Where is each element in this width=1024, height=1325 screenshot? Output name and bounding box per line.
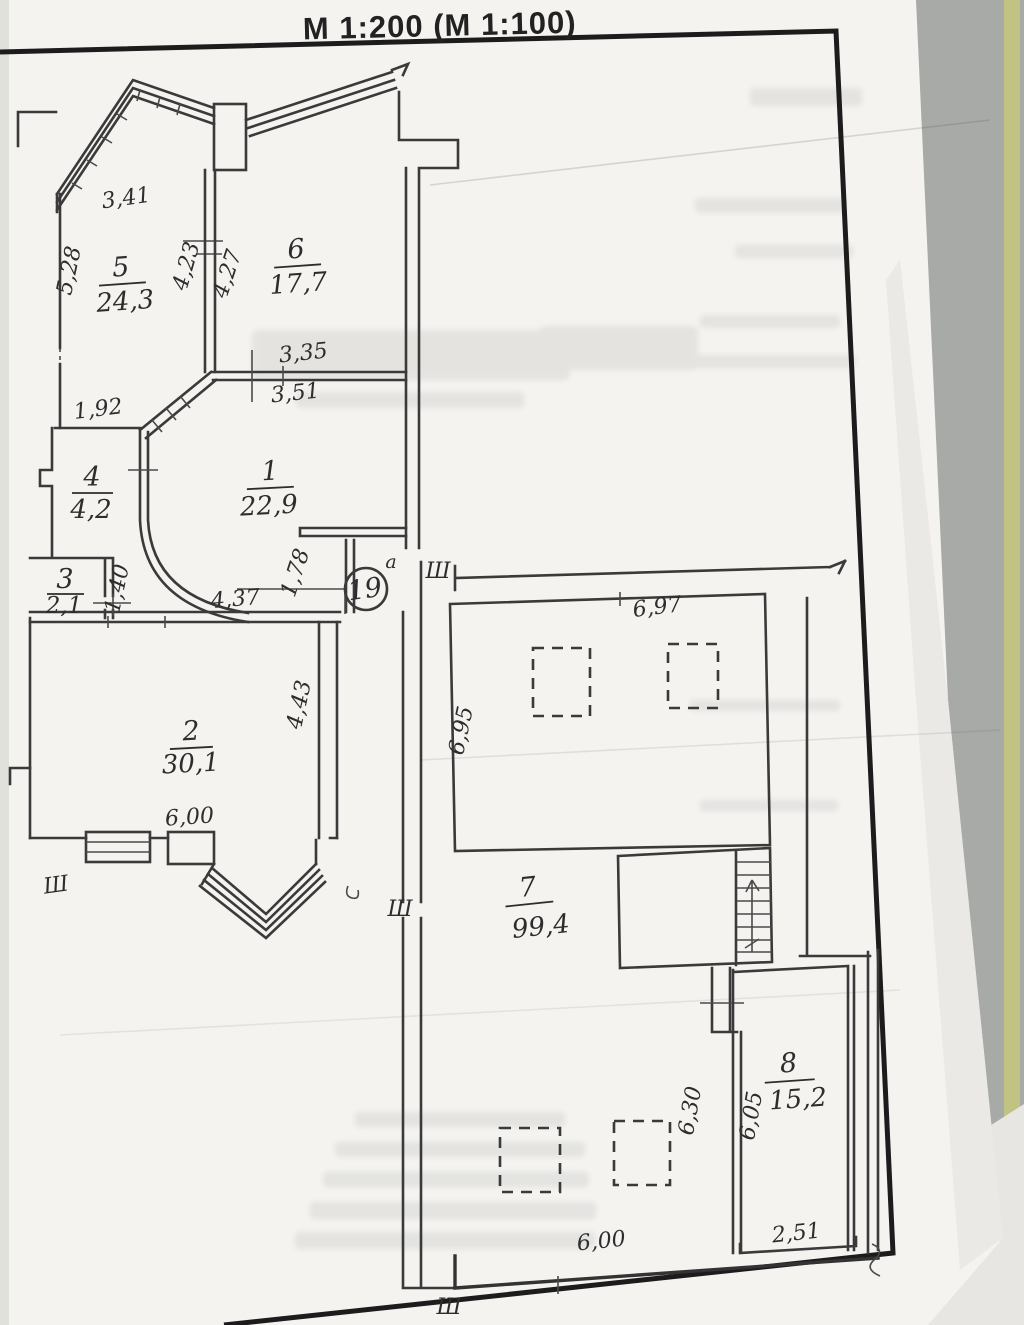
svg-text:8: 8	[779, 1047, 798, 1079]
svg-text:17,7: 17,7	[268, 267, 328, 301]
floor-plan-canvas: М 1:200 (М 1:100)	[0, 0, 1024, 1325]
dim-6-00: 6,00	[164, 803, 215, 831]
svg-text:99,4: 99,4	[510, 909, 571, 945]
svg-text:24,3: 24,3	[94, 285, 155, 319]
dim-3-51: 3,51	[270, 379, 321, 409]
door-mark-1: Ш	[41, 871, 71, 900]
paper-left-shadow	[0, 0, 9, 1325]
svg-text:6: 6	[286, 233, 305, 265]
door-mark-3: Ш	[386, 897, 413, 922]
dim-6-00-b: 6,00	[576, 1227, 627, 1257]
svg-text:5: 5	[111, 251, 130, 283]
svg-text:1: 1	[261, 456, 280, 488]
scanned-floor-plan-page: М 1:200 (М 1:100)	[0, 0, 1024, 1325]
dim-4-37: 4,37	[209, 585, 261, 614]
svg-text:4,2: 4,2	[69, 495, 111, 525]
unit-superscript: a	[385, 551, 396, 573]
dim-2-51: 2,51	[770, 1219, 822, 1249]
dim-3-35: 3,35	[278, 339, 329, 369]
unit-number: 19	[346, 572, 384, 607]
svg-text:22,9: 22,9	[238, 490, 298, 523]
door-mark-4: Ш	[435, 1295, 462, 1320]
svg-text:15,2: 15,2	[768, 1082, 828, 1116]
svg-text:4: 4	[82, 462, 100, 493]
svg-text:30,1: 30,1	[161, 747, 220, 780]
door-mark-2: Ш	[424, 559, 451, 584]
svg-text:2: 2	[181, 715, 201, 747]
scale-title: М 1:200 (М 1:100)	[302, 5, 576, 47]
svg-text:3: 3	[56, 564, 73, 595]
svg-text:2,1: 2,1	[45, 593, 83, 619]
